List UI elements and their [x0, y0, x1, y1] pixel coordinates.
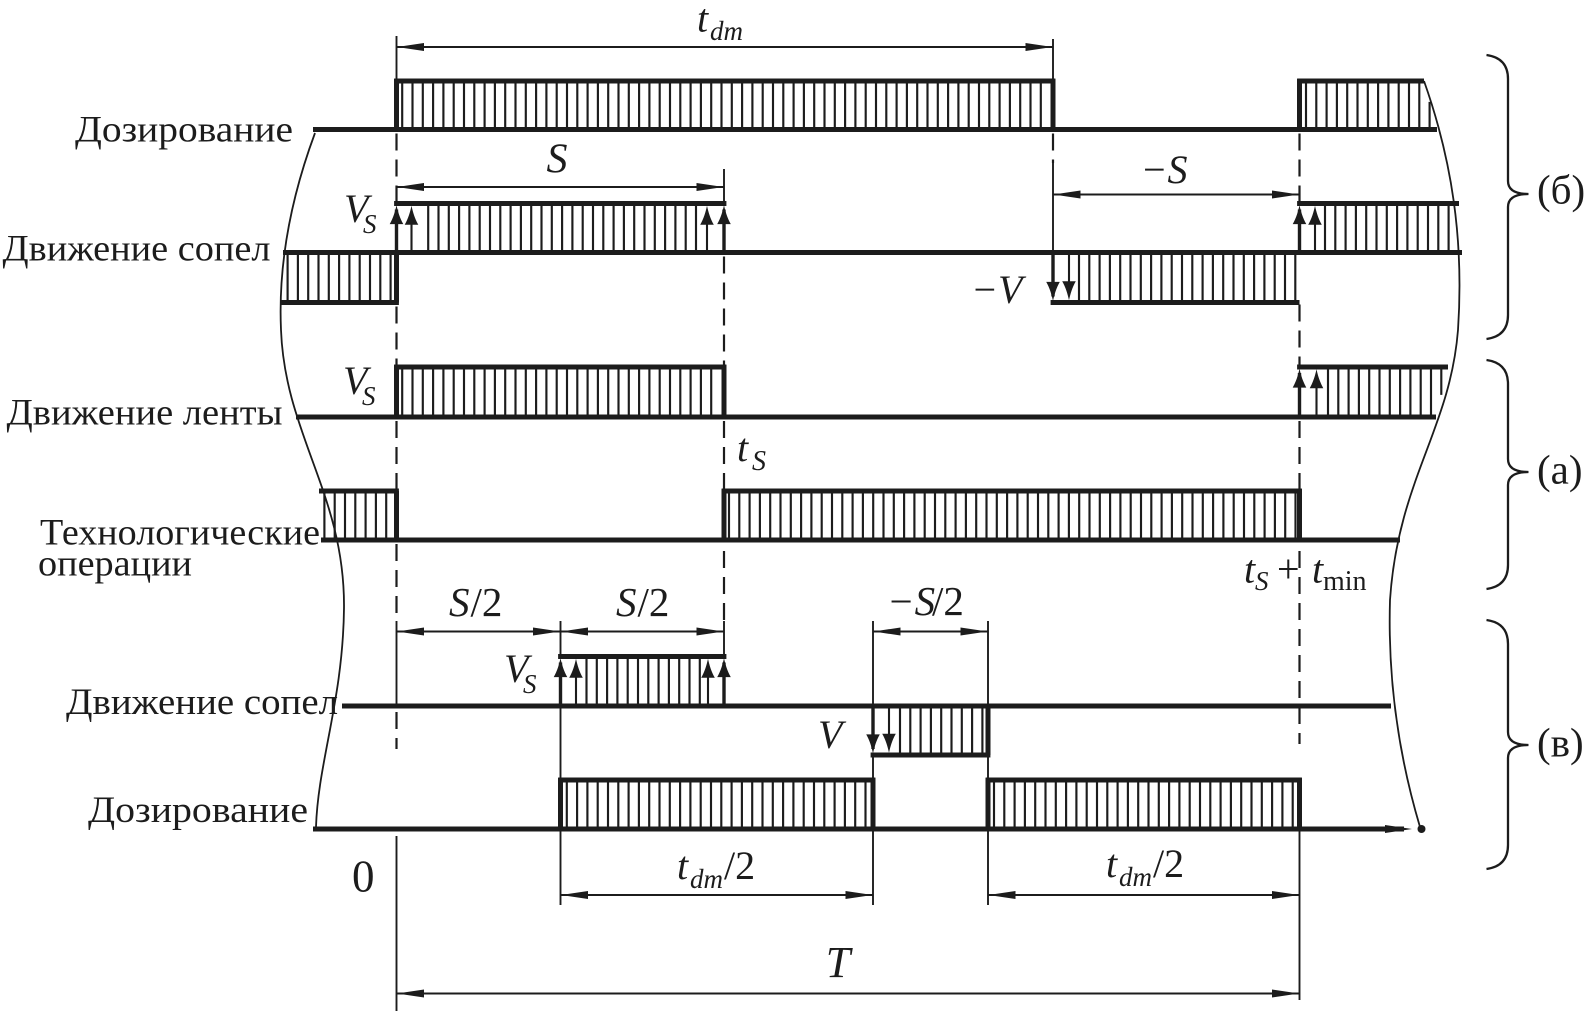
svg-text:−S: −S — [887, 578, 935, 624]
svg-text:S: S — [363, 209, 377, 239]
svg-text:Дозирование: Дозирование — [75, 109, 293, 150]
svg-text:(б): (б) — [1537, 167, 1585, 213]
svg-text:S: S — [449, 579, 470, 625]
svg-text:min: min — [1323, 566, 1367, 597]
svg-text:S: S — [1255, 566, 1269, 596]
svg-text:/2: /2 — [724, 843, 755, 888]
svg-text:Движение сопел: Движение сопел — [3, 228, 271, 269]
svg-text:S: S — [523, 669, 537, 699]
svg-text:S: S — [752, 446, 766, 477]
svg-text:Движение ленты: Движение ленты — [7, 392, 283, 433]
svg-text:t: t — [677, 843, 689, 888]
svg-text:(а): (а) — [1537, 447, 1583, 493]
svg-text:S: S — [362, 381, 376, 411]
svg-text:V: V — [818, 712, 847, 757]
svg-text:T: T — [826, 938, 854, 987]
svg-text:−S: −S — [1141, 147, 1188, 192]
svg-text:t: t — [1106, 841, 1118, 886]
svg-text:/2: /2 — [932, 578, 964, 624]
svg-text:/2: /2 — [638, 579, 670, 625]
svg-text:S: S — [547, 137, 568, 183]
svg-text:t: t — [737, 425, 749, 470]
svg-text:dm: dm — [710, 16, 743, 46]
svg-text:(в): (в) — [1537, 720, 1584, 766]
svg-text:−V: −V — [971, 267, 1027, 312]
svg-text:dm: dm — [1119, 862, 1152, 892]
svg-text:t: t — [697, 0, 709, 41]
svg-text:dm: dm — [690, 864, 723, 894]
svg-text:0: 0 — [352, 852, 375, 902]
svg-text:Движение сопел: Движение сопел — [66, 681, 338, 722]
svg-text:Дозирование: Дозирование — [88, 789, 308, 830]
svg-text:+: + — [1277, 547, 1300, 592]
svg-text:S: S — [616, 579, 637, 625]
svg-text:операции: операции — [38, 543, 192, 584]
svg-text:/2: /2 — [471, 579, 503, 625]
svg-text:/2: /2 — [1153, 841, 1184, 886]
